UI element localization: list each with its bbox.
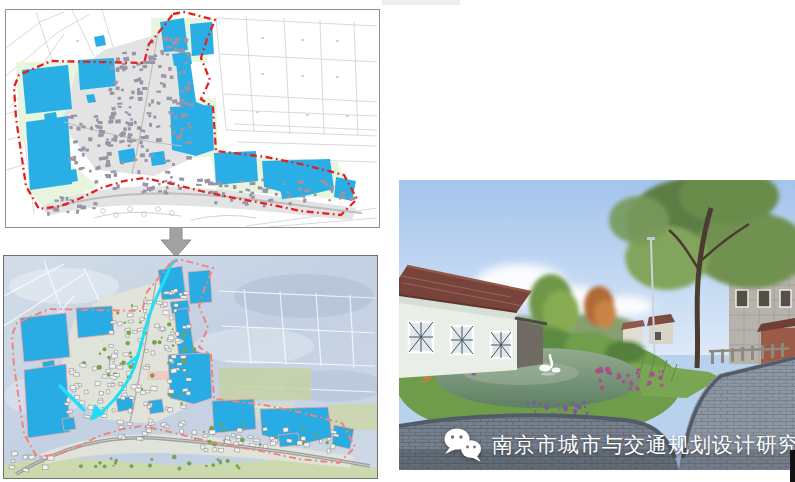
wechat-icon [443, 427, 483, 463]
after-planning-map [3, 255, 378, 479]
cropped-ui-fragment-top [382, 0, 460, 5]
pond-rendering-photo: 南京市城市与交通规划设计研究院 [399, 180, 795, 470]
scrollbar-fragment[interactable] [790, 450, 795, 482]
watermark: 南京市城市与交通规划设计研究院 [443, 427, 795, 463]
transform-arrow-icon [156, 227, 196, 257]
before-planning-map [5, 9, 380, 228]
watermark-text: 南京市城市与交通规划设计研究院 [492, 431, 795, 459]
figure-canvas: 南京市城市与交通规划设计研究院 [0, 0, 795, 482]
side-shed [517, 320, 543, 368]
